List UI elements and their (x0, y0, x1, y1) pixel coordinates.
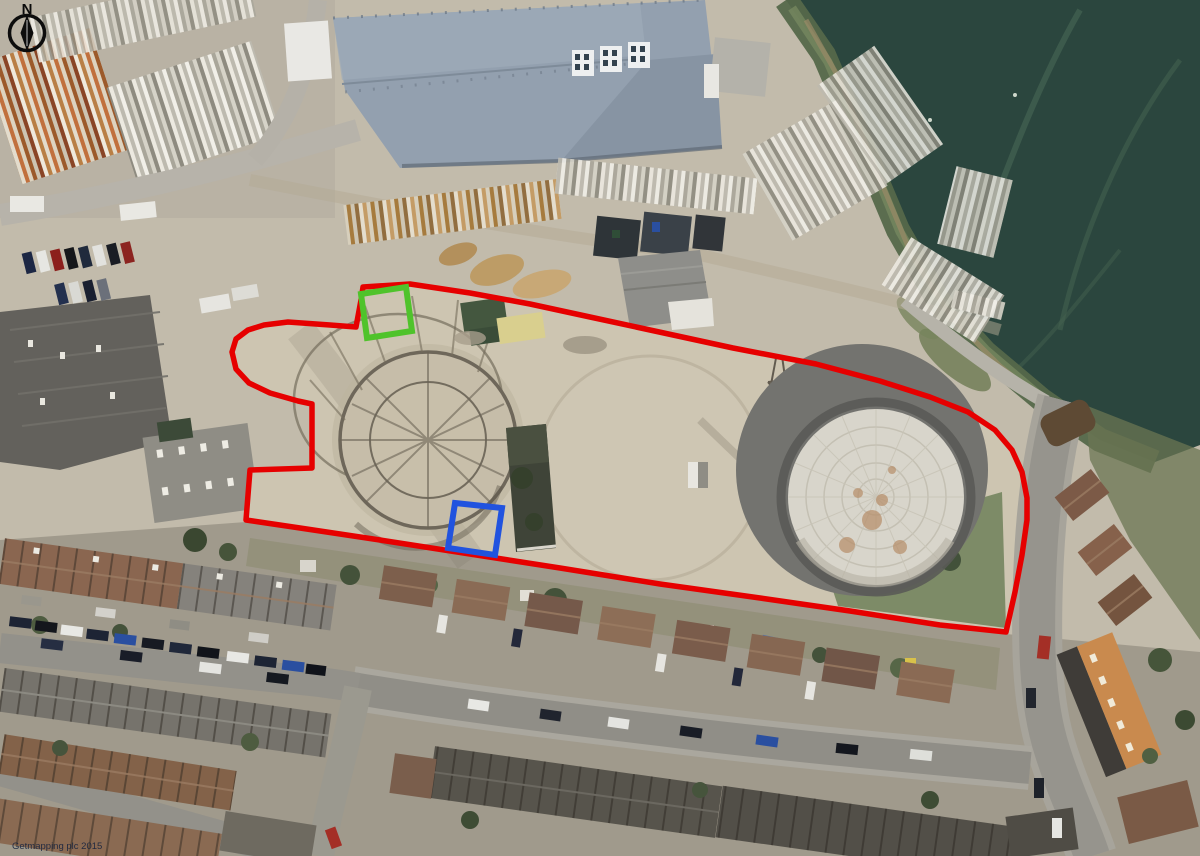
copyright-text: Getmapping plc 2015 (12, 841, 102, 852)
aerial-site-plan: N Getmapping plc 2015 (0, 0, 1200, 856)
holder-footprint (538, 356, 762, 580)
truck (704, 64, 719, 98)
white-van (10, 196, 44, 212)
red-car (1037, 635, 1051, 659)
concrete-structure-side (698, 462, 708, 488)
gray-shed (618, 250, 714, 330)
compass-north-label: N (22, 1, 33, 18)
aerial-photo: N Getmapping plc 2015 (0, 0, 1200, 856)
gasholder-right (736, 344, 988, 596)
small-white-building (284, 21, 332, 82)
